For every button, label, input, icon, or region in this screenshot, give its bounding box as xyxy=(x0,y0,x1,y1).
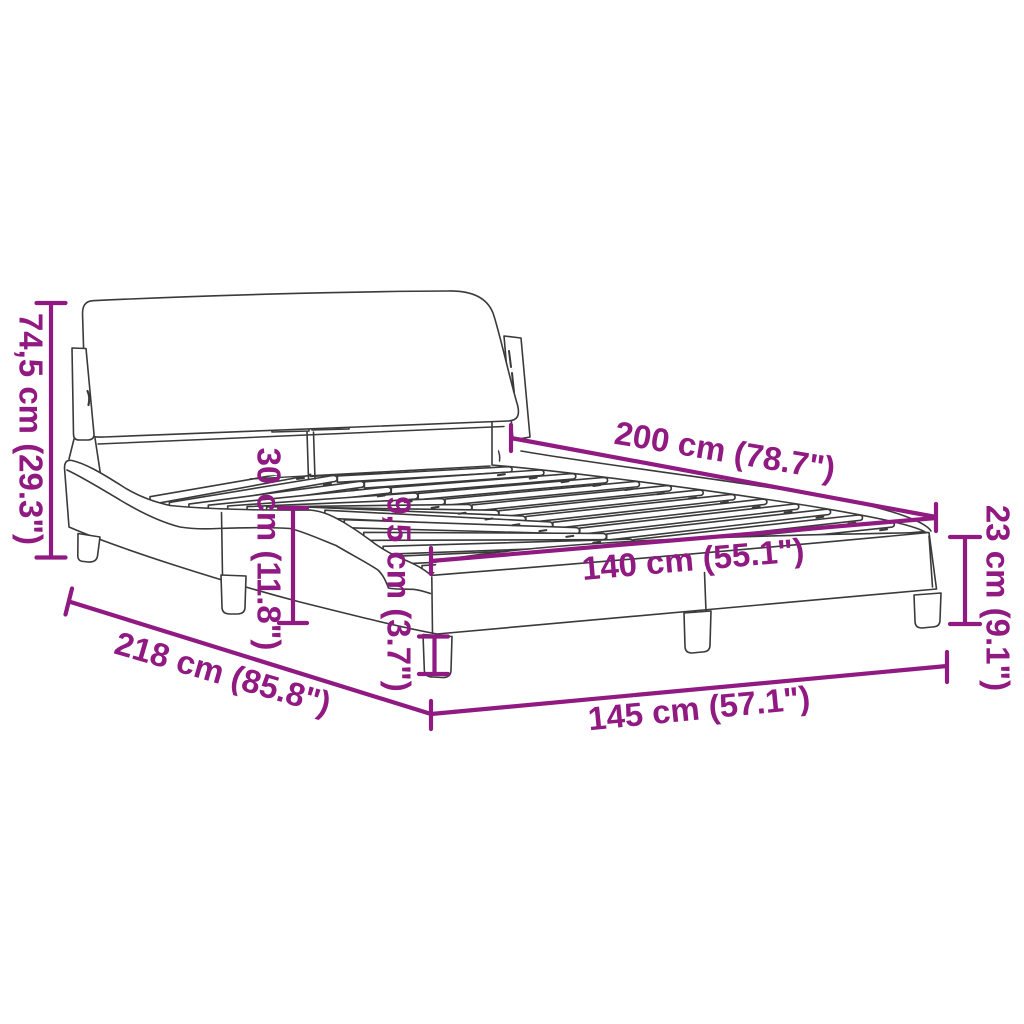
svg-text:9,5 cm (3.7"): 9,5 cm (3.7") xyxy=(381,496,418,691)
svg-text:30 cm (11.8"): 30 cm (11.8") xyxy=(251,448,288,651)
svg-text:23 cm (9.1"): 23 cm (9.1") xyxy=(980,505,1017,691)
svg-text:74,5 cm (29.3"): 74,5 cm (29.3") xyxy=(13,313,50,545)
